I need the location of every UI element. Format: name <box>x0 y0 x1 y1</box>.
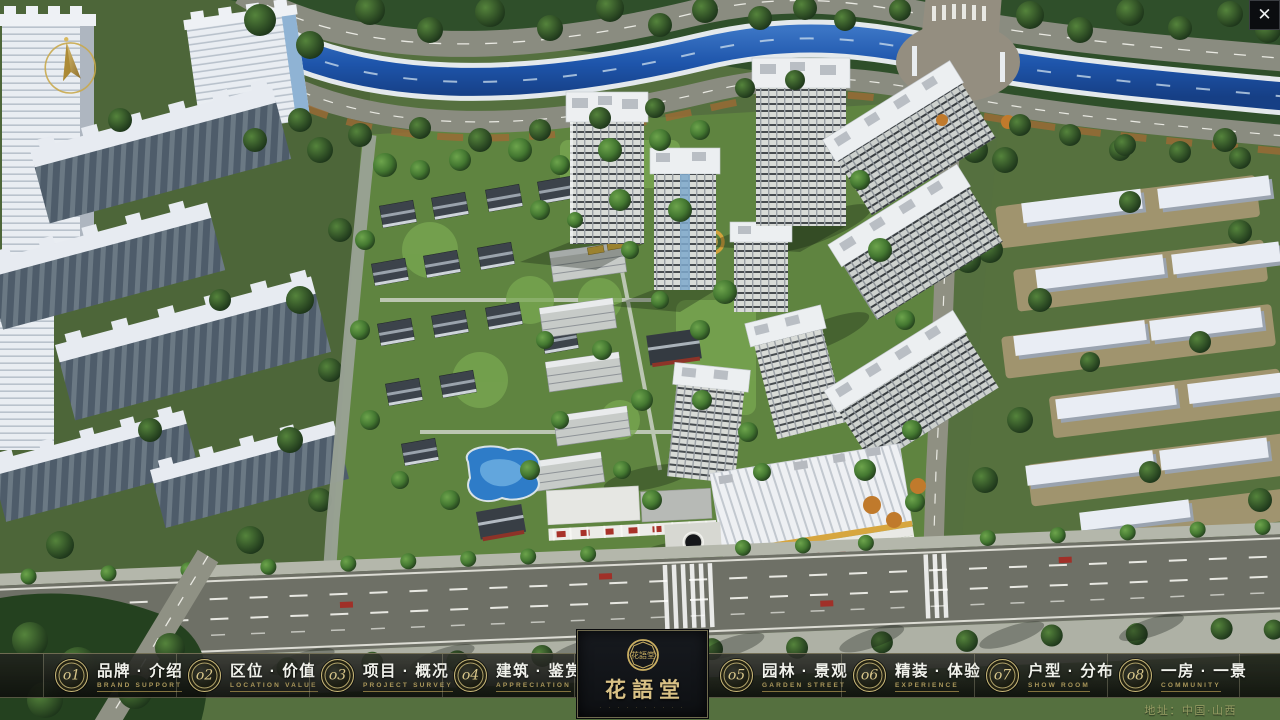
brand-subtext: · · · · · · · · · · <box>599 705 685 711</box>
nav-item-location-value[interactable]: o2 区位 · 价值 LOCATION VALUE <box>176 654 309 697</box>
nav-item-brand-intro[interactable]: o1 品牌 · 介绍 BRAND SUPPORT <box>43 654 176 697</box>
masterplan-render <box>0 0 1280 720</box>
nav-label: 园林 · 景观 <box>762 659 848 681</box>
brand-name: 花語堂 <box>599 674 686 704</box>
compass-icon <box>34 30 106 102</box>
nav-item-floorplan-badge: o7 <box>986 659 1019 692</box>
nav-item-architecture-badge: o4 <box>454 659 487 692</box>
close-button[interactable]: ✕ <box>1249 0 1280 30</box>
nav-sublabel: COMMUNITY <box>1161 682 1221 692</box>
nav-item-interior-experience[interactable]: o6 精装 · 体验 EXPERIENCE <box>841 654 974 697</box>
nav-item-location-value-badge: o2 <box>188 659 221 692</box>
nav-label: 品牌 · 介绍 <box>97 659 183 681</box>
nav-item-project-overview-badge: o3 <box>321 659 354 692</box>
brand-seal-icon: 花語堂 <box>626 638 660 672</box>
nav-sublabel: LOCATION VALUE <box>230 682 318 692</box>
nav-sublabel: EXPERIENCE <box>895 682 959 692</box>
nav-sublabel: APPRECIATION <box>496 682 571 692</box>
nav-item-brand-intro-badge: o1 <box>55 659 88 692</box>
nav-sublabel: BRAND SUPPORT <box>97 682 182 692</box>
nav-label: 户型 · 分布 <box>1028 659 1114 681</box>
nav-sublabel: SHOW ROOM <box>1028 682 1090 692</box>
nav-label: 精装 · 体验 <box>895 659 981 681</box>
nav-item-landscape-badge: o5 <box>720 659 753 692</box>
nav-item-project-overview[interactable]: o3 项目 · 概况 PROJECT SURVEY <box>309 654 442 697</box>
nav-sublabel: GARDEN STREET <box>762 682 846 692</box>
nav-item-room-view[interactable]: o8 一房 · 一景 COMMUNITY <box>1107 654 1240 697</box>
nav-label: 建筑 · 鉴赏 <box>496 659 582 681</box>
nav-group-left: o1 品牌 · 介绍 BRAND SUPPORT o2 区位 · 价值 LOCA… <box>43 654 575 697</box>
nav-sublabel: PROJECT SURVEY <box>363 682 453 692</box>
nav-group-right: o5 园林 · 景观 GARDEN STREET o6 精装 · 体验 EXPE… <box>708 654 1240 697</box>
nav-item-landscape[interactable]: o5 园林 · 景观 GARDEN STREET <box>708 654 841 697</box>
nav-item-architecture[interactable]: o4 建筑 · 鉴赏 APPRECIATION <box>442 654 575 697</box>
nav-item-floorplan[interactable]: o7 户型 · 分布 SHOW ROOM <box>974 654 1107 697</box>
app-window: ✕ o1 品牌 · 介绍 BRAND SUPPORT o2 区位 · 价值 LO… <box>0 0 1280 720</box>
nav-item-interior-experience-badge: o6 <box>853 659 886 692</box>
nav-label: 一房 · 一景 <box>1161 659 1247 681</box>
nav-item-room-view-badge: o8 <box>1119 659 1152 692</box>
nav-label: 区位 · 价值 <box>230 659 316 681</box>
logo-panel: 花語堂 花語堂 · · · · · · · · · · <box>577 630 708 718</box>
nav-label: 项目 · 概况 <box>363 659 449 681</box>
project-address: 地址：中国·山西 <box>1144 702 1237 718</box>
svg-text:花語堂: 花語堂 <box>631 650 655 660</box>
